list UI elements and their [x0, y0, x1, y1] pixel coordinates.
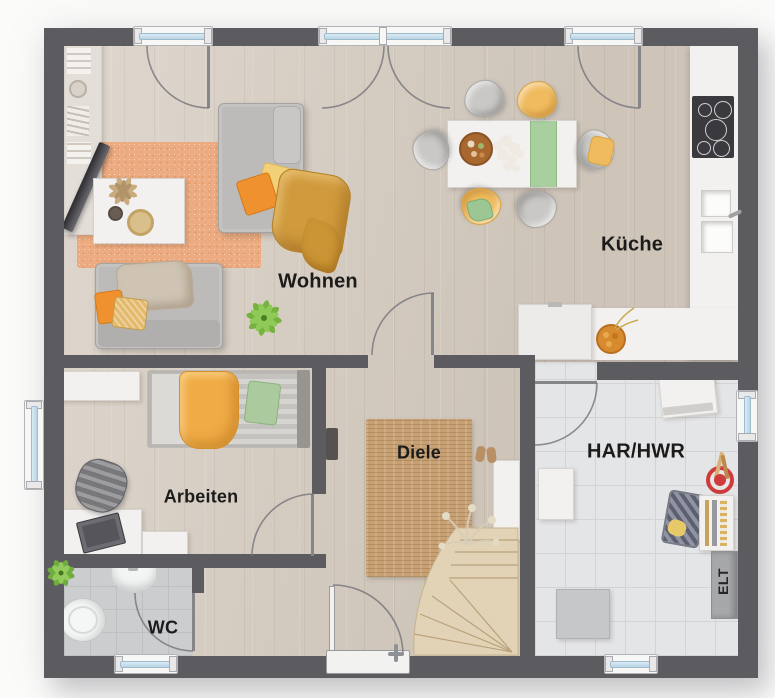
burner: [713, 140, 730, 157]
dining-table: [447, 120, 577, 188]
window-kitchen-top: [564, 26, 643, 46]
decor-tray: [127, 209, 154, 236]
wall-left: [44, 28, 64, 678]
door-leaf: [207, 46, 210, 108]
sofa-back-cushion: [273, 106, 301, 164]
window-har-bottom: [604, 654, 658, 674]
freezer-box: [556, 589, 610, 639]
door-leaf: [192, 593, 195, 651]
window-terrace-left: [133, 26, 213, 46]
window-glass: [610, 661, 652, 668]
cleaning-bucket: [706, 466, 734, 494]
burner: [697, 141, 711, 155]
books-stack: [67, 142, 91, 164]
room-label-wc: WC: [148, 618, 178, 639]
fridge-cabinet: [518, 304, 592, 360]
bed-blanket-yellow: [179, 371, 239, 449]
window-glass: [744, 396, 751, 436]
entrance-door-leaf: [329, 586, 335, 655]
room-label-kueche: Küche: [601, 234, 663, 257]
door-leaf: [638, 46, 641, 108]
entrance-door-handle-icon: [388, 652, 404, 656]
fridge-handle: [548, 302, 562, 307]
pillow-tan: [111, 296, 149, 331]
window-glass: [570, 33, 637, 40]
decor-vase: [108, 206, 123, 221]
wall-har-north: [597, 362, 738, 380]
window-glass: [120, 661, 172, 668]
ironing-item: [720, 500, 727, 546]
kitchen-counter-bottom: [592, 308, 738, 360]
wall-organizer: [326, 428, 338, 460]
wall-office-south: [44, 554, 326, 568]
decor-basket: [69, 80, 87, 98]
toilet-seat: [68, 606, 98, 634]
wall-connector: [520, 355, 535, 382]
utility-cabinet: [538, 468, 574, 520]
table-runner: [530, 121, 557, 187]
wall-har-west: [520, 380, 535, 656]
door-leaf: [431, 293, 434, 355]
books-stack: [67, 106, 89, 136]
desk-extension: [142, 531, 188, 556]
ironing-item: [712, 500, 717, 546]
room-label-elt: ELT: [715, 568, 731, 595]
floor-plan: Wohnen Küche Arbeiten Diele WC HAR/HWR E…: [0, 0, 775, 698]
window-har-right: [736, 390, 758, 442]
window-glass: [139, 33, 207, 40]
sink-basin: [701, 221, 733, 253]
wall-wc-east: [192, 568, 204, 593]
window-glass: [31, 406, 38, 484]
window-office-left: [24, 400, 44, 490]
bed-pillow-green: [244, 380, 282, 426]
room-label-arbeiten: Arbeiten: [164, 487, 239, 508]
books-stack: [67, 48, 91, 74]
bed-headboard: [297, 370, 310, 448]
slippers: [486, 447, 497, 464]
room-label-har-hwr: HAR/HWR: [587, 441, 685, 464]
wall-living-hall: [64, 355, 368, 368]
door-leaf: [311, 494, 314, 556]
room-label-wohnen: Wohnen: [278, 271, 358, 294]
wall-right: [738, 28, 758, 678]
ironing-item: [705, 500, 709, 546]
window-wc-bottom: [114, 654, 178, 674]
wall-office-east: [312, 368, 326, 494]
burner: [714, 101, 732, 119]
burner: [698, 103, 712, 117]
room-label-diele: Diele: [397, 443, 441, 464]
burner: [705, 119, 727, 141]
sink-basin: [701, 190, 731, 217]
window-mullion: [379, 27, 387, 45]
hall-sideboard: [493, 460, 520, 540]
har-door-threshold: [535, 362, 597, 380]
door-leaf: [535, 381, 597, 384]
